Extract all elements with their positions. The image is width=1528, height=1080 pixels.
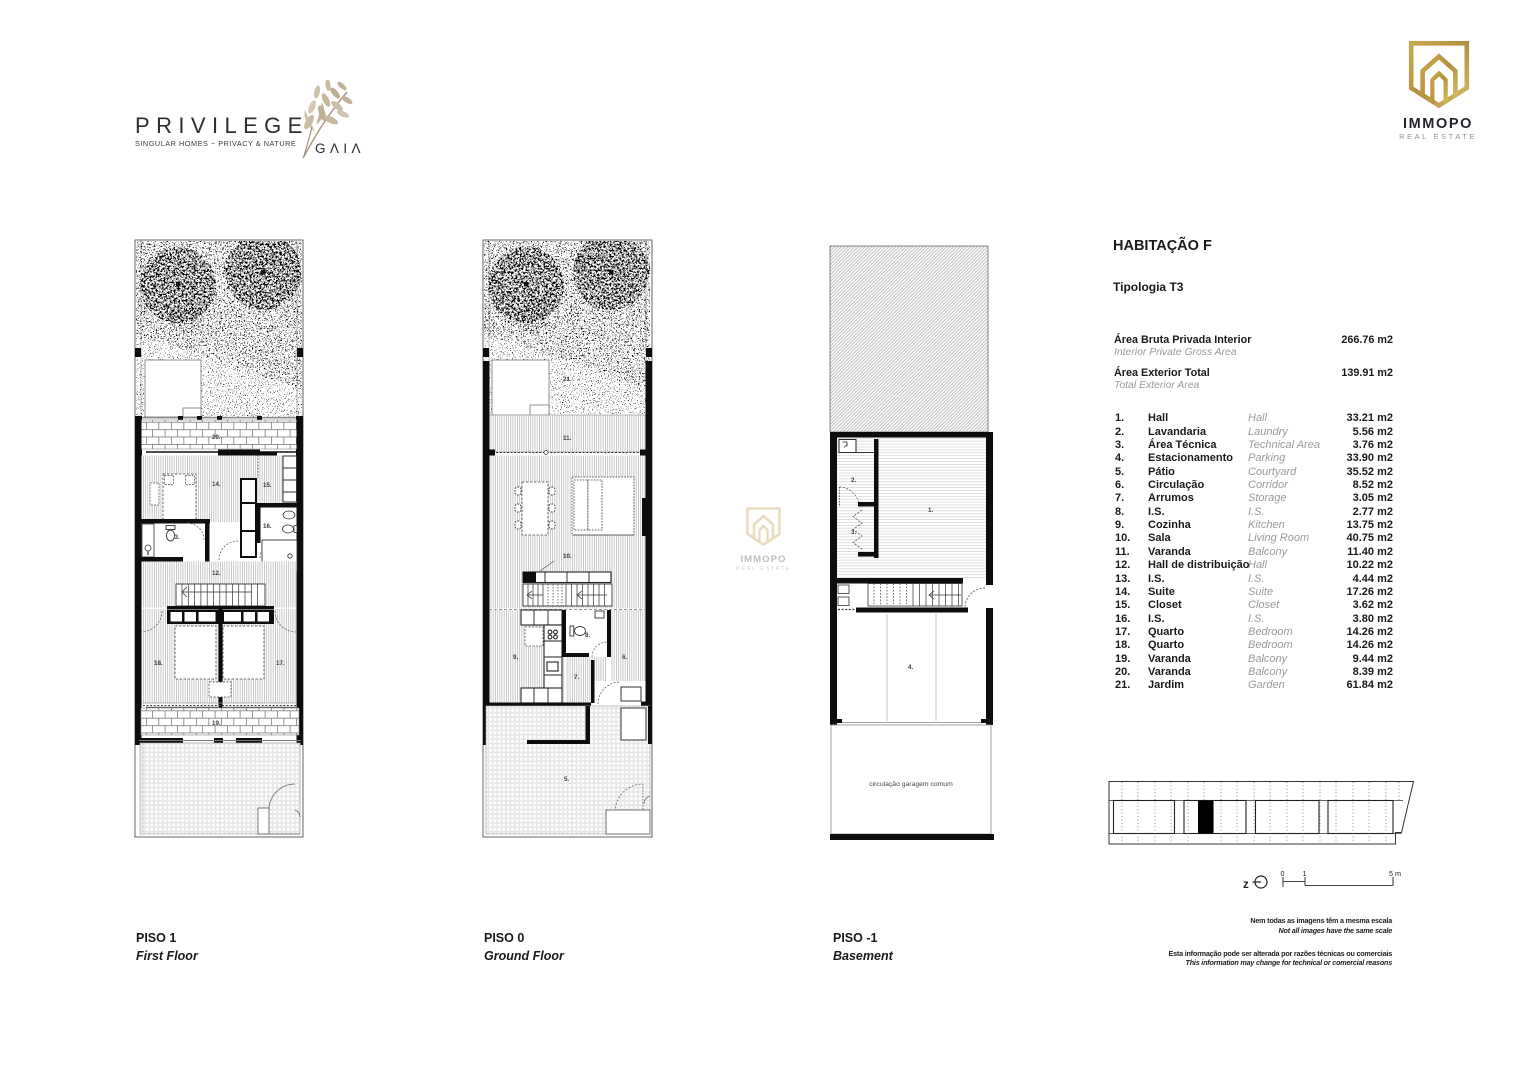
svg-text:REAL ESTATE: REAL ESTATE [736,566,791,572]
svg-text:0: 0 [1281,869,1285,878]
svg-text:9.: 9. [513,654,518,661]
svg-text:4.: 4. [908,664,913,671]
svg-text:21.: 21. [563,376,572,383]
svg-text:5.: 5. [564,776,569,783]
svg-text:6.: 6. [622,654,627,661]
svg-text:circulação garagem comum: circulação garagem comum [869,781,953,788]
svg-text:19.: 19. [212,720,221,727]
svg-text:5 m: 5 m [1389,869,1401,878]
svg-text:16.: 16. [263,523,272,530]
svg-text:18.: 18. [154,660,163,667]
svg-text:z: z [1243,879,1249,891]
svg-text:15.: 15. [263,482,272,489]
svg-text:2.: 2. [851,477,856,484]
svg-text:11.: 11. [563,435,572,442]
svg-text:1.: 1. [928,507,933,514]
svg-text:7.: 7. [574,674,579,681]
svg-text:20.: 20. [212,434,221,441]
svg-text:IMMOPO: IMMOPO [741,554,787,565]
svg-text:8.: 8. [585,632,590,639]
svg-text:1: 1 [1303,869,1307,878]
svg-text:14.: 14. [212,481,221,488]
svg-text:12.: 12. [212,570,221,577]
svg-text:17.: 17. [276,660,285,667]
svg-text:10.: 10. [563,553,572,560]
